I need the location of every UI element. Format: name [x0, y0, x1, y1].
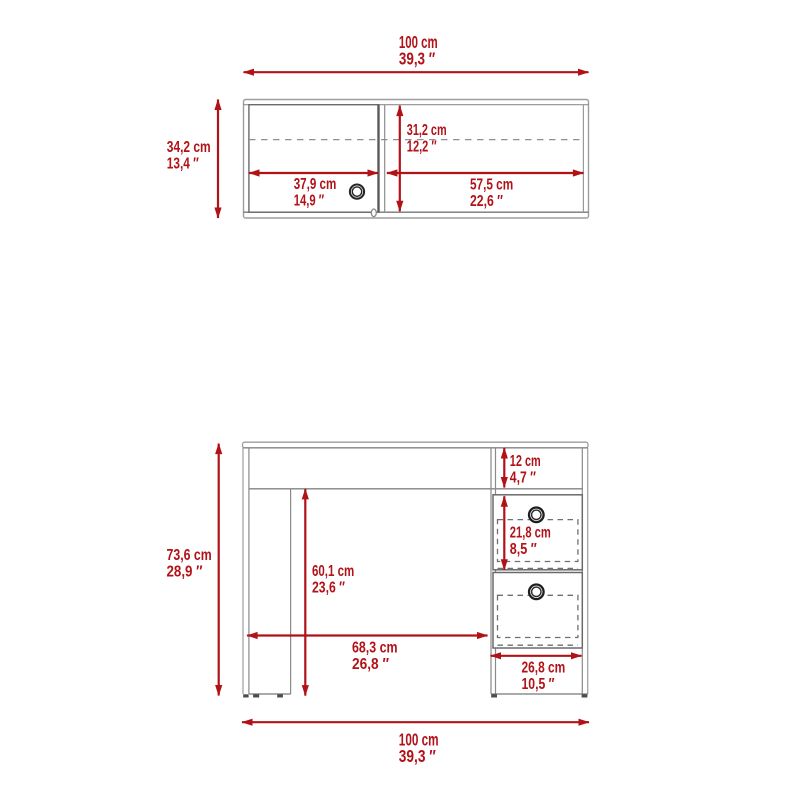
svg-text:68,3 cm: 68,3 cm	[352, 639, 398, 656]
svg-text:31,2 cm: 31,2 cm	[407, 122, 447, 139]
svg-text:22,6 ″: 22,6 ″	[470, 193, 503, 210]
svg-text:73,6 cm: 73,6 cm	[167, 547, 212, 564]
svg-text:12,2 ″: 12,2 ″	[407, 138, 437, 155]
svg-text:4,7 ″: 4,7 ″	[510, 470, 536, 487]
svg-text:60,1 cm: 60,1 cm	[312, 563, 354, 580]
svg-text:23,6 ″: 23,6 ″	[312, 580, 345, 597]
svg-text:37,9 cm: 37,9 cm	[294, 176, 337, 193]
svg-text:34,2 cm: 34,2 cm	[167, 139, 211, 156]
svg-text:21,8 cm: 21,8 cm	[510, 525, 551, 542]
svg-text:13,4 ″: 13,4 ″	[167, 156, 199, 173]
svg-text:26,8 cm: 26,8 cm	[522, 660, 566, 677]
svg-text:39,3 ″: 39,3 ″	[399, 49, 436, 69]
svg-text:26,8 ″: 26,8 ″	[352, 656, 389, 673]
svg-text:12 cm: 12 cm	[510, 453, 541, 470]
svg-text:28,9 ″: 28,9 ″	[167, 564, 203, 581]
svg-text:14,9 ″: 14,9 ″	[294, 192, 325, 209]
svg-text:57,5 cm: 57,5 cm	[470, 176, 513, 193]
svg-text:8,5 ″: 8,5 ″	[510, 541, 537, 558]
svg-text:39,3 ″: 39,3 ″	[399, 746, 436, 766]
svg-text:10,5 ″: 10,5 ″	[522, 676, 555, 693]
